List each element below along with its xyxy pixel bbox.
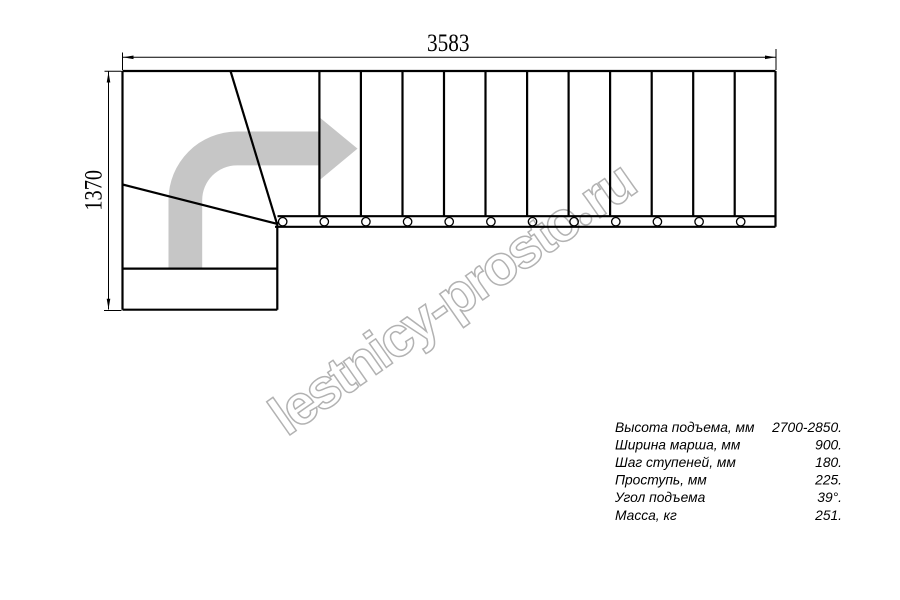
svg-text:180.: 180.	[815, 455, 842, 470]
svg-text:Угол подъема: Угол подъема	[614, 490, 706, 505]
svg-text:Высота подъема, мм: Высота подъема, мм	[615, 420, 755, 435]
svg-text:251.: 251.	[814, 508, 842, 523]
svg-text:39°.: 39°.	[817, 490, 842, 505]
svg-text:Шаг ступеней, мм: Шаг ступеней, мм	[615, 455, 736, 470]
svg-text:3583: 3583	[427, 30, 470, 57]
svg-text:Ширина марша, мм: Ширина марша, мм	[615, 438, 741, 453]
svg-text:Масса, кг: Масса, кг	[615, 508, 677, 523]
svg-text:ru: ru	[567, 149, 645, 230]
svg-text:225.: 225.	[814, 473, 842, 488]
svg-text:1370: 1370	[81, 170, 108, 211]
svg-text:900.: 900.	[815, 438, 842, 453]
svg-text:2700-2850.: 2700-2850.	[771, 420, 842, 435]
svg-text:Проступь, мм: Проступь, мм	[615, 473, 707, 488]
